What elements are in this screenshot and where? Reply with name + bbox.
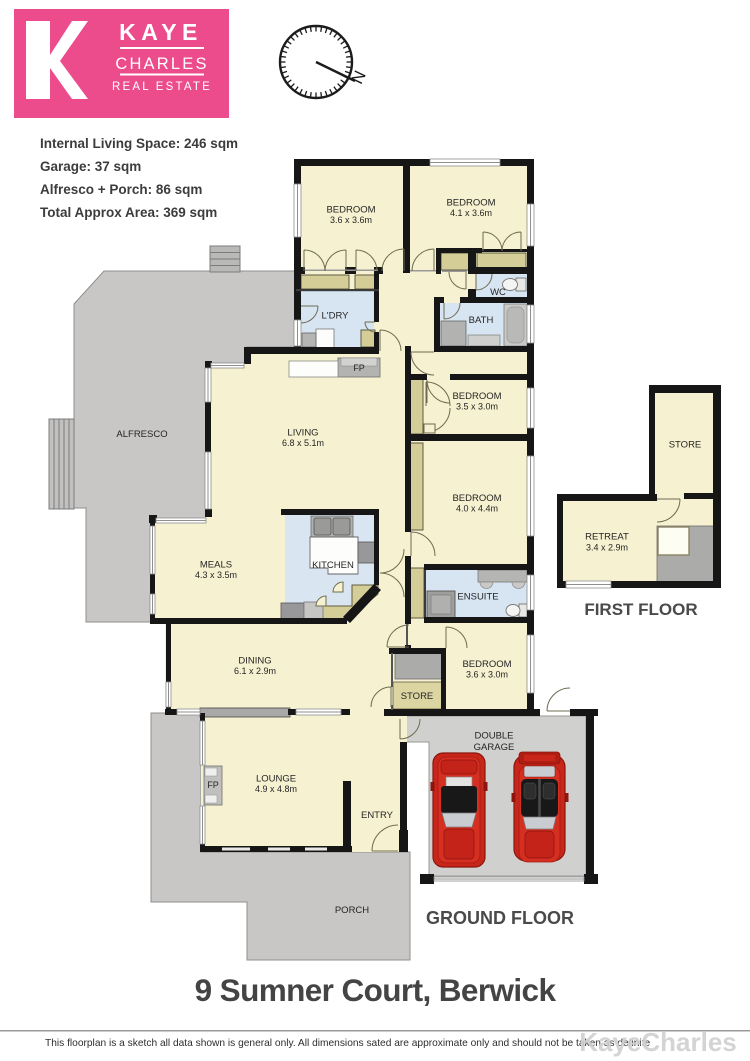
svg-text:DOUBLE: DOUBLE [474, 731, 513, 742]
svg-text:MEALS: MEALS [200, 560, 232, 571]
svg-text:PORCH: PORCH [335, 905, 369, 916]
svg-text:WC: WC [490, 287, 506, 298]
svg-text:ENTRY: ENTRY [361, 810, 394, 821]
svg-text:9 Sumner Court, Berwick: 9 Sumner Court, Berwick [195, 972, 557, 1008]
svg-text:KAYE: KAYE [119, 19, 203, 45]
svg-text:FP: FP [207, 780, 219, 790]
svg-text:BATH: BATH [469, 315, 494, 326]
svg-text:3.6 x 3.6m: 3.6 x 3.6m [330, 215, 372, 225]
svg-text:STORE: STORE [669, 440, 702, 451]
svg-text:4.3 x 3.5m: 4.3 x 3.5m [195, 570, 237, 580]
svg-text:RETREAT: RETREAT [585, 532, 629, 543]
svg-text:KayeCharles: KayeCharles [579, 1027, 737, 1057]
svg-text:BEDROOM: BEDROOM [452, 391, 501, 402]
svg-text:L'DRY: L'DRY [322, 311, 350, 322]
svg-text:CHARLES: CHARLES [115, 55, 208, 73]
svg-text:4.0 x 4.4m: 4.0 x 4.4m [456, 504, 498, 514]
svg-text:3.5 x 3.0m: 3.5 x 3.0m [456, 402, 498, 412]
svg-text:BEDROOM: BEDROOM [452, 493, 501, 504]
svg-text:GROUND FLOOR: GROUND FLOOR [426, 908, 574, 928]
svg-text:ALFRESCO: ALFRESCO [116, 429, 167, 440]
svg-text:LIVING: LIVING [287, 428, 318, 439]
svg-text:Alfresco + Porch: 86 sqm: Alfresco + Porch: 86 sqm [40, 182, 202, 197]
svg-text:REAL ESTATE: REAL ESTATE [112, 81, 212, 93]
svg-text:4.9 x 4.8m: 4.9 x 4.8m [255, 784, 297, 794]
svg-text:DINING: DINING [238, 656, 271, 667]
svg-text:3.6 x 3.0m: 3.6 x 3.0m [466, 670, 508, 680]
svg-text:4.1 x 3.6m: 4.1 x 3.6m [450, 208, 492, 218]
svg-text:Garage: 37 sqm: Garage: 37 sqm [40, 159, 141, 174]
svg-text:LOUNGE: LOUNGE [256, 774, 296, 785]
svg-text:STORE: STORE [401, 691, 434, 702]
svg-text:6.1 x 2.9m: 6.1 x 2.9m [234, 666, 276, 676]
svg-text:Internal Living Space: 246 sqm: Internal Living Space: 246 sqm [40, 136, 238, 151]
svg-text:3.4 x 2.9m: 3.4 x 2.9m [586, 543, 628, 553]
svg-text:BEDROOM: BEDROOM [446, 198, 495, 209]
svg-text:GARAGE: GARAGE [474, 742, 515, 753]
svg-text:ENSUITE: ENSUITE [457, 592, 498, 603]
svg-text:6.8 x 5.1m: 6.8 x 5.1m [282, 438, 324, 448]
svg-text:FIRST FLOOR: FIRST FLOOR [584, 600, 697, 619]
svg-text:Total Approx Area: 369 sqm: Total Approx Area: 369 sqm [40, 205, 217, 220]
svg-text:BEDROOM: BEDROOM [326, 205, 375, 216]
svg-text:BEDROOM: BEDROOM [462, 659, 511, 670]
svg-text:KITCHEN: KITCHEN [312, 560, 354, 571]
svg-text:FP: FP [353, 363, 365, 373]
svg-text:This floorplan is a sketch all: This floorplan is a sketch all data show… [45, 1038, 651, 1049]
